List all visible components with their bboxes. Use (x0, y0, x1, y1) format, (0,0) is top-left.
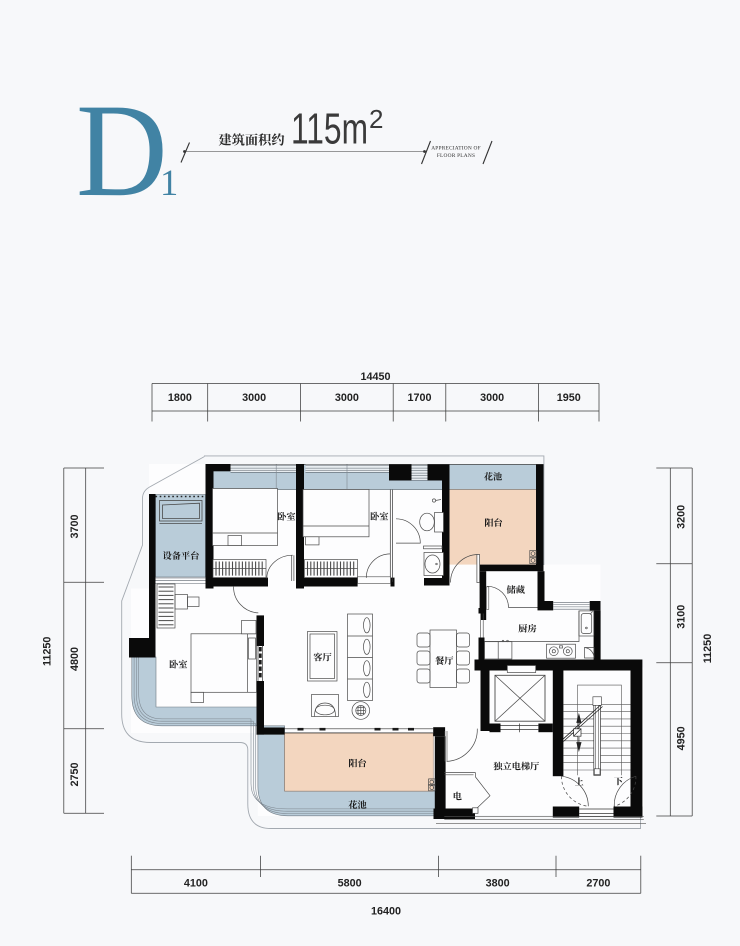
svg-text:3000: 3000 (242, 392, 266, 404)
svg-text:1800: 1800 (168, 392, 192, 404)
svg-text:3000: 3000 (335, 392, 359, 404)
svg-text:3000: 3000 (480, 392, 504, 404)
svg-text:5800: 5800 (338, 878, 362, 890)
svg-text:1: 1 (160, 162, 178, 203)
svg-text:14450: 14450 (360, 371, 390, 383)
svg-text:3800: 3800 (486, 878, 510, 890)
svg-text:1700: 1700 (407, 392, 431, 404)
svg-text:APPRECIATION OF: APPRECIATION OF (431, 146, 481, 152)
svg-text:4100: 4100 (184, 878, 208, 890)
svg-text:1950: 1950 (557, 392, 581, 404)
svg-text:11250: 11250 (702, 634, 714, 663)
svg-text:16400: 16400 (371, 906, 401, 918)
svg-text:3200: 3200 (676, 505, 688, 529)
svg-text:4950: 4950 (676, 726, 688, 750)
svg-text:115m: 115m (291, 105, 368, 154)
svg-text:2750: 2750 (69, 762, 81, 786)
svg-text:3700: 3700 (69, 514, 81, 538)
svg-text:FLOOR PLANS: FLOOR PLANS (437, 153, 475, 159)
svg-text:D: D (76, 77, 168, 225)
svg-text:2: 2 (369, 104, 383, 134)
svg-text:2700: 2700 (586, 878, 610, 890)
svg-text:4800: 4800 (69, 647, 81, 671)
svg-text:11250: 11250 (42, 637, 54, 666)
svg-text:3100: 3100 (676, 605, 688, 629)
